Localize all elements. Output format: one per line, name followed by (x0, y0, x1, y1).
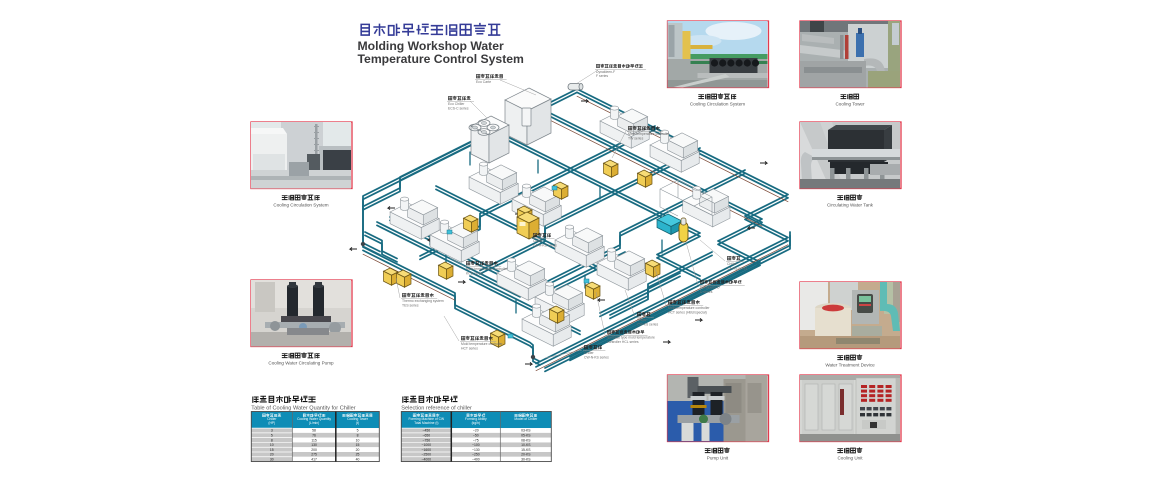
svg-text:8: 8 (357, 433, 359, 437)
svg-text:D series: D series (700, 290, 713, 294)
svg-text:Selection reference of chiller: Selection reference of chiller (401, 406, 472, 412)
svg-text:40: 40 (356, 457, 360, 461)
svg-text:~750: ~750 (422, 438, 430, 442)
svg-text:ECS-C series: ECS-C series (448, 106, 469, 110)
svg-text:CA-H-KS series: CA-H-KS series (533, 243, 557, 247)
svg-text:05-KS: 05-KS (521, 433, 531, 437)
svg-text:275: 275 (311, 453, 317, 457)
svg-text:Model of Chiller: Model of Chiller (514, 417, 538, 421)
svg-text:115: 115 (311, 438, 317, 442)
svg-text:Pump Unit: Pump Unit (707, 456, 729, 461)
svg-text:5: 5 (271, 433, 273, 437)
svg-text:~4000: ~4000 (422, 457, 432, 461)
svg-text:~250: ~250 (472, 453, 480, 457)
svg-text:Total Machine (t): Total Machine (t) (414, 421, 438, 425)
svg-text:F series: F series (596, 74, 608, 78)
svg-text:10-KS: 10-KS (521, 443, 531, 447)
svg-text:20-KS: 20-KS (521, 453, 531, 457)
svg-text:20: 20 (356, 448, 360, 452)
svg-text:Cooling Circulation System: Cooling Circulation System (273, 203, 328, 208)
svg-text:(t): (t) (356, 421, 359, 425)
svg-text:(HP): (HP) (268, 421, 275, 425)
svg-text:CA-KS series: CA-KS series (727, 266, 748, 270)
svg-text:20: 20 (270, 453, 274, 457)
svg-text:~130: ~130 (472, 448, 480, 452)
svg-text:15-KS: 15-KS (521, 448, 531, 452)
svg-text:8: 8 (271, 438, 273, 442)
svg-text:Eco Carte: Eco Carte (476, 80, 491, 84)
svg-text:controller HCL series: controller HCL series (607, 340, 639, 344)
svg-text:3: 3 (271, 429, 273, 433)
svg-text:Circulating Water Tank: Circulating Water Tank (827, 203, 874, 208)
svg-text:KCD series: KCD series (466, 271, 483, 275)
svg-text:10: 10 (270, 443, 274, 447)
svg-text:HCT series (HBU/special): HCT series (HBU/special) (668, 310, 707, 314)
svg-text:~20: ~20 (473, 429, 479, 433)
svg-text:(kg/h): (kg/h) (472, 421, 480, 425)
svg-text:130: 130 (311, 443, 317, 447)
svg-text:15: 15 (270, 448, 274, 452)
svg-text:Cooling Unit: Cooling Unit (837, 456, 863, 461)
svg-text:~2500: ~2500 (422, 453, 432, 457)
svg-text:200: 200 (311, 448, 317, 452)
svg-text:76: 76 (312, 433, 316, 437)
svg-text:~50: ~50 (473, 433, 479, 437)
svg-text:Table of Cooling Water Quantit: Table of Cooling Water Quantity for Chil… (251, 406, 355, 412)
svg-text:CW-N-KS series: CW-N-KS series (584, 355, 609, 359)
svg-text:Water Treatment Device: Water Treatment Device (825, 363, 875, 368)
svg-text:~75: ~75 (473, 438, 479, 442)
svg-text:~100: ~100 (472, 443, 480, 447)
svg-text:TES series: TES series (402, 303, 419, 307)
svg-text:15: 15 (356, 443, 360, 447)
svg-text:10: 10 (356, 438, 360, 442)
svg-text:~400: ~400 (472, 457, 480, 461)
svg-text:HCT series: HCT series (461, 346, 478, 350)
svg-text:~450: ~450 (422, 429, 430, 433)
svg-text:Temperature Control System: Temperature Control System (358, 52, 525, 66)
svg-text:~1600: ~1600 (422, 448, 432, 452)
svg-text:Cooling Water Circulating Pump: Cooling Water Circulating Pump (268, 361, 334, 366)
svg-text:08-KS: 08-KS (521, 438, 531, 442)
svg-text:(L/min): (L/min) (309, 421, 319, 425)
svg-text:Molding Workshop Water: Molding Workshop Water (358, 39, 505, 53)
svg-text:TW series: TW series (628, 136, 644, 140)
svg-text:Cooling Circulation System: Cooling Circulation System (690, 102, 745, 107)
svg-text:Cooling Tower: Cooling Tower (835, 102, 864, 107)
svg-text:~650: ~650 (422, 433, 430, 437)
svg-text:30: 30 (270, 457, 274, 461)
svg-text:03-KS: 03-KS (521, 429, 531, 433)
svg-text:5: 5 (357, 429, 359, 433)
svg-text:30-KS: 30-KS (521, 457, 531, 461)
svg-text:CW-KS series: CW-KS series (637, 322, 659, 326)
svg-text:417: 417 (311, 457, 317, 461)
svg-text:~1000: ~1000 (422, 443, 432, 447)
svg-text:58: 58 (312, 429, 316, 433)
svg-text:25: 25 (356, 453, 360, 457)
